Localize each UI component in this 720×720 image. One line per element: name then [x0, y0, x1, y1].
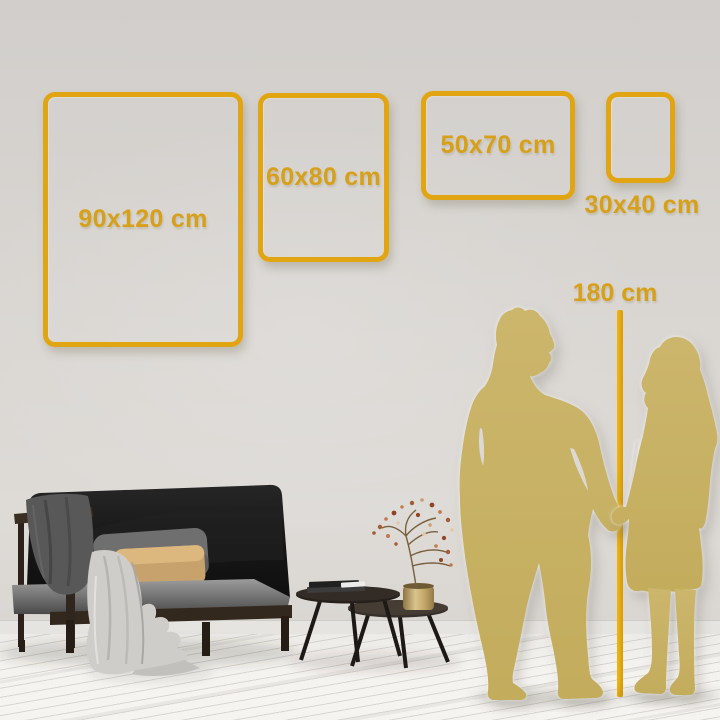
woman-silhouette [612, 337, 718, 695]
coffee-tables [296, 498, 454, 668]
room-scene [0, 0, 720, 720]
coffee-table-large [296, 586, 400, 662]
sofa-leg [281, 616, 289, 651]
man-silhouette [460, 307, 622, 700]
sofa-leg [66, 620, 74, 653]
poster-size-guide-scene: 90x120 cm 60x80 cm 50x70 cm 30x40 cm 180… [0, 0, 720, 720]
sofa-leg [202, 622, 210, 656]
brass-vase [403, 583, 434, 610]
books-stack [307, 580, 365, 593]
dried-flowers [372, 498, 454, 567]
sofa-frame-post [18, 515, 24, 647]
dried-branch [382, 510, 450, 586]
